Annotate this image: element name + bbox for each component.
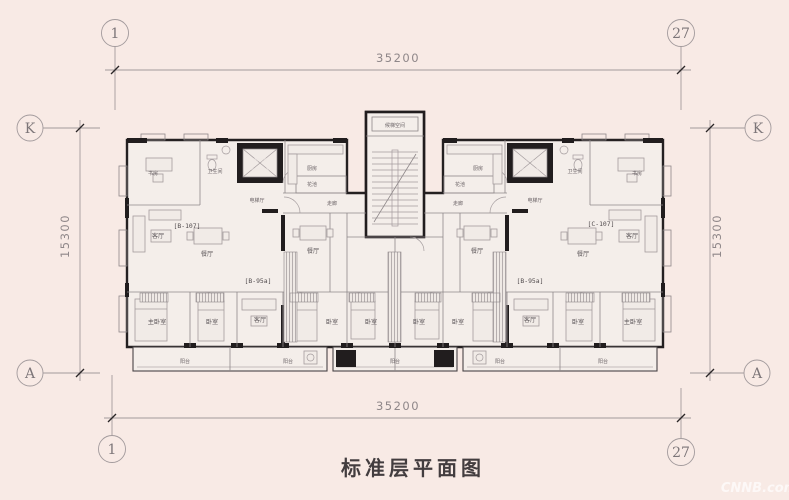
label-living-mid-left: 客厅 — [254, 316, 266, 324]
label-stair-space: 候梯空间 — [385, 122, 405, 129]
watermark: CNNB.com.cn — [721, 481, 789, 496]
drawing-title: 标准层平面图 — [341, 456, 485, 480]
grid-bubble-27-bottom-label: 27 — [672, 445, 690, 461]
label-dining-right-mid: 餐厅 — [471, 247, 483, 255]
label-master-right: 主卧室 — [624, 318, 643, 326]
label-balcony-4: 阳台 — [495, 358, 505, 365]
label-elevator-hall-right: 电梯厅 — [527, 197, 542, 204]
label-kitchen-right: 厨房 — [473, 165, 483, 172]
label-dining-left-end: 餐厅 — [201, 250, 213, 258]
label-balcony-5: 阳台 — [598, 358, 608, 365]
elevator-left-label-1: 消防电梯 — [253, 157, 268, 162]
label-unit-left-mid: [B-95a] — [245, 277, 272, 285]
dim-right: 15300 — [710, 214, 724, 258]
label-flowerbed-right: 花池 — [455, 181, 465, 188]
label-study-left: 书房 — [148, 170, 158, 177]
label-corridor-right: 走廊 — [453, 200, 463, 207]
label-bedroom-6: 卧室 — [572, 318, 584, 326]
stair-tower — [366, 112, 424, 237]
label-dining-right-end: 餐厅 — [577, 250, 589, 258]
label-living-left-end: 客厅 — [152, 232, 164, 240]
grid-bubble-1-top-label: 1 — [111, 26, 120, 42]
label-kitchen-left: 厨房 — [307, 165, 317, 172]
label-bath-right: 卫生间 — [567, 168, 582, 175]
label-dining-left-mid: 餐厅 — [307, 247, 319, 255]
elevator-left: 消防电梯 无障碍电梯 — [237, 143, 283, 183]
grid-bubble-a-right-label: A — [751, 366, 763, 382]
grid-bubble-k-right-label: K — [753, 121, 764, 137]
elevator-right-label-2: (无障碍电梯) — [520, 167, 541, 172]
label-living-right-end: 客厅 — [626, 232, 638, 240]
label-elevator-hall-left: 电梯厅 — [249, 197, 264, 204]
label-bedroom-4: 卧室 — [413, 318, 425, 326]
label-unit-right-end: [C-107] — [588, 220, 615, 228]
label-balcony-3: 阳台 — [390, 358, 400, 365]
grid-bubble-27-top-label: 27 — [672, 26, 690, 42]
label-master-left: 主卧室 — [148, 318, 167, 326]
label-unit-left-end: [B-107] — [174, 222, 201, 230]
dim-top: 35200 — [376, 51, 420, 65]
label-unit-right-mid: [B-95a] — [517, 277, 544, 285]
label-balcony-1: 阳台 — [180, 358, 190, 365]
label-bedroom-2: 卧室 — [326, 318, 338, 326]
grid-bubble-1-bottom-label: 1 — [108, 442, 117, 458]
label-flowerbed-left: 花池 — [307, 181, 317, 188]
elevator-right-label-1: 电梯 — [526, 157, 534, 162]
elevator-right: 电梯 (无障碍电梯) — [507, 143, 553, 183]
floor-plan-page: 1 27 35200 35200 1 27 K A 15300 K — [0, 0, 789, 500]
label-balcony-2: 阳台 — [283, 358, 293, 365]
grid-bubble-a-left-label: A — [24, 366, 36, 382]
label-study-right: 书房 — [632, 170, 642, 177]
label-bath-left: 卫生间 — [207, 168, 222, 175]
label-bedroom-3: 卧室 — [365, 318, 377, 326]
grid-bubble-k-left-label: K — [25, 121, 36, 137]
label-living-mid-right: 客厅 — [524, 316, 536, 324]
dim-left: 15300 — [58, 214, 72, 258]
label-corridor-left: 走廊 — [327, 200, 337, 207]
label-bedroom-1: 卧室 — [206, 318, 218, 326]
dim-bottom: 35200 — [376, 399, 420, 413]
elevator-left-label-2: 无障碍电梯 — [251, 167, 269, 172]
floor-plan-drawing: 1 27 35200 35200 1 27 K A 15300 K — [0, 0, 789, 500]
label-bedroom-5: 卧室 — [452, 318, 464, 326]
